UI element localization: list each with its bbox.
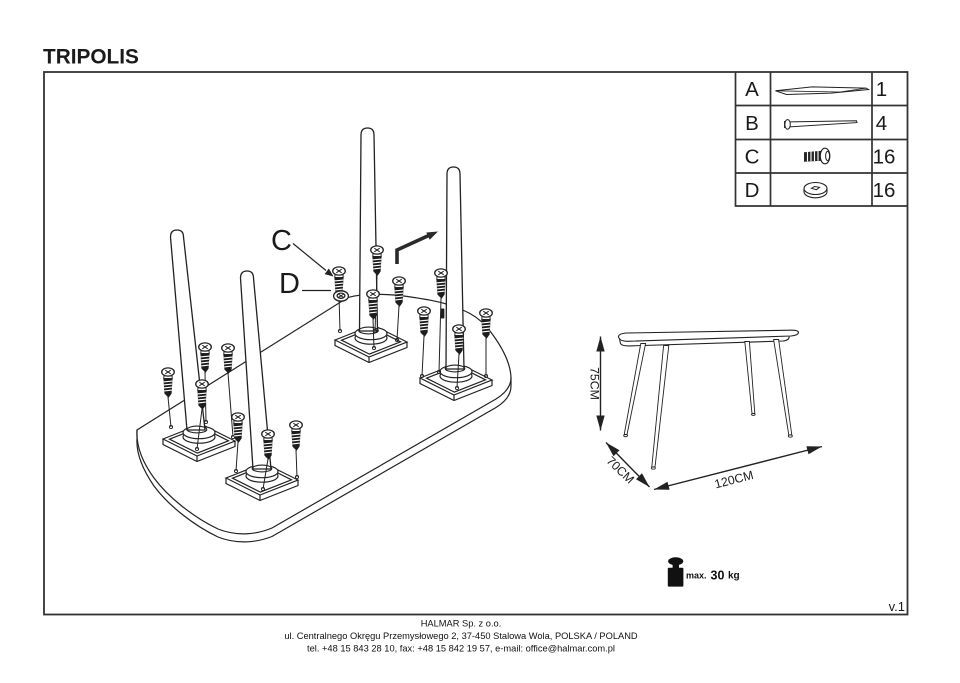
svg-text:v.1: v.1	[889, 599, 905, 614]
svg-text:tel. +48 15 843 28 10, fax: +4: tel. +48 15 843 28 10, fax: +48 15 842 1…	[307, 644, 615, 654]
svg-text:C: C	[271, 225, 292, 257]
svg-text:1: 1	[876, 78, 887, 101]
svg-text:16: 16	[873, 179, 896, 202]
svg-text:C: C	[745, 146, 760, 169]
svg-text:16: 16	[873, 146, 896, 169]
svg-text:75CM: 75CM	[588, 367, 602, 400]
svg-text:ul. Centralnego Okręgu Przemys: ul. Centralnego Okręgu Przemysłowego 2, …	[284, 631, 638, 641]
svg-text:TRIPOLIS: TRIPOLIS	[43, 46, 139, 69]
svg-text:HALMAR Sp. z o.o.: HALMAR Sp. z o.o.	[421, 619, 502, 629]
svg-text:A: A	[745, 78, 759, 101]
svg-text:30: 30	[711, 569, 725, 583]
svg-text:D: D	[745, 179, 760, 202]
svg-text:max.: max.	[686, 571, 707, 581]
svg-text:D: D	[279, 268, 300, 300]
svg-text:4: 4	[876, 112, 887, 135]
svg-text:kg: kg	[728, 571, 740, 582]
svg-text:B: B	[745, 112, 759, 135]
